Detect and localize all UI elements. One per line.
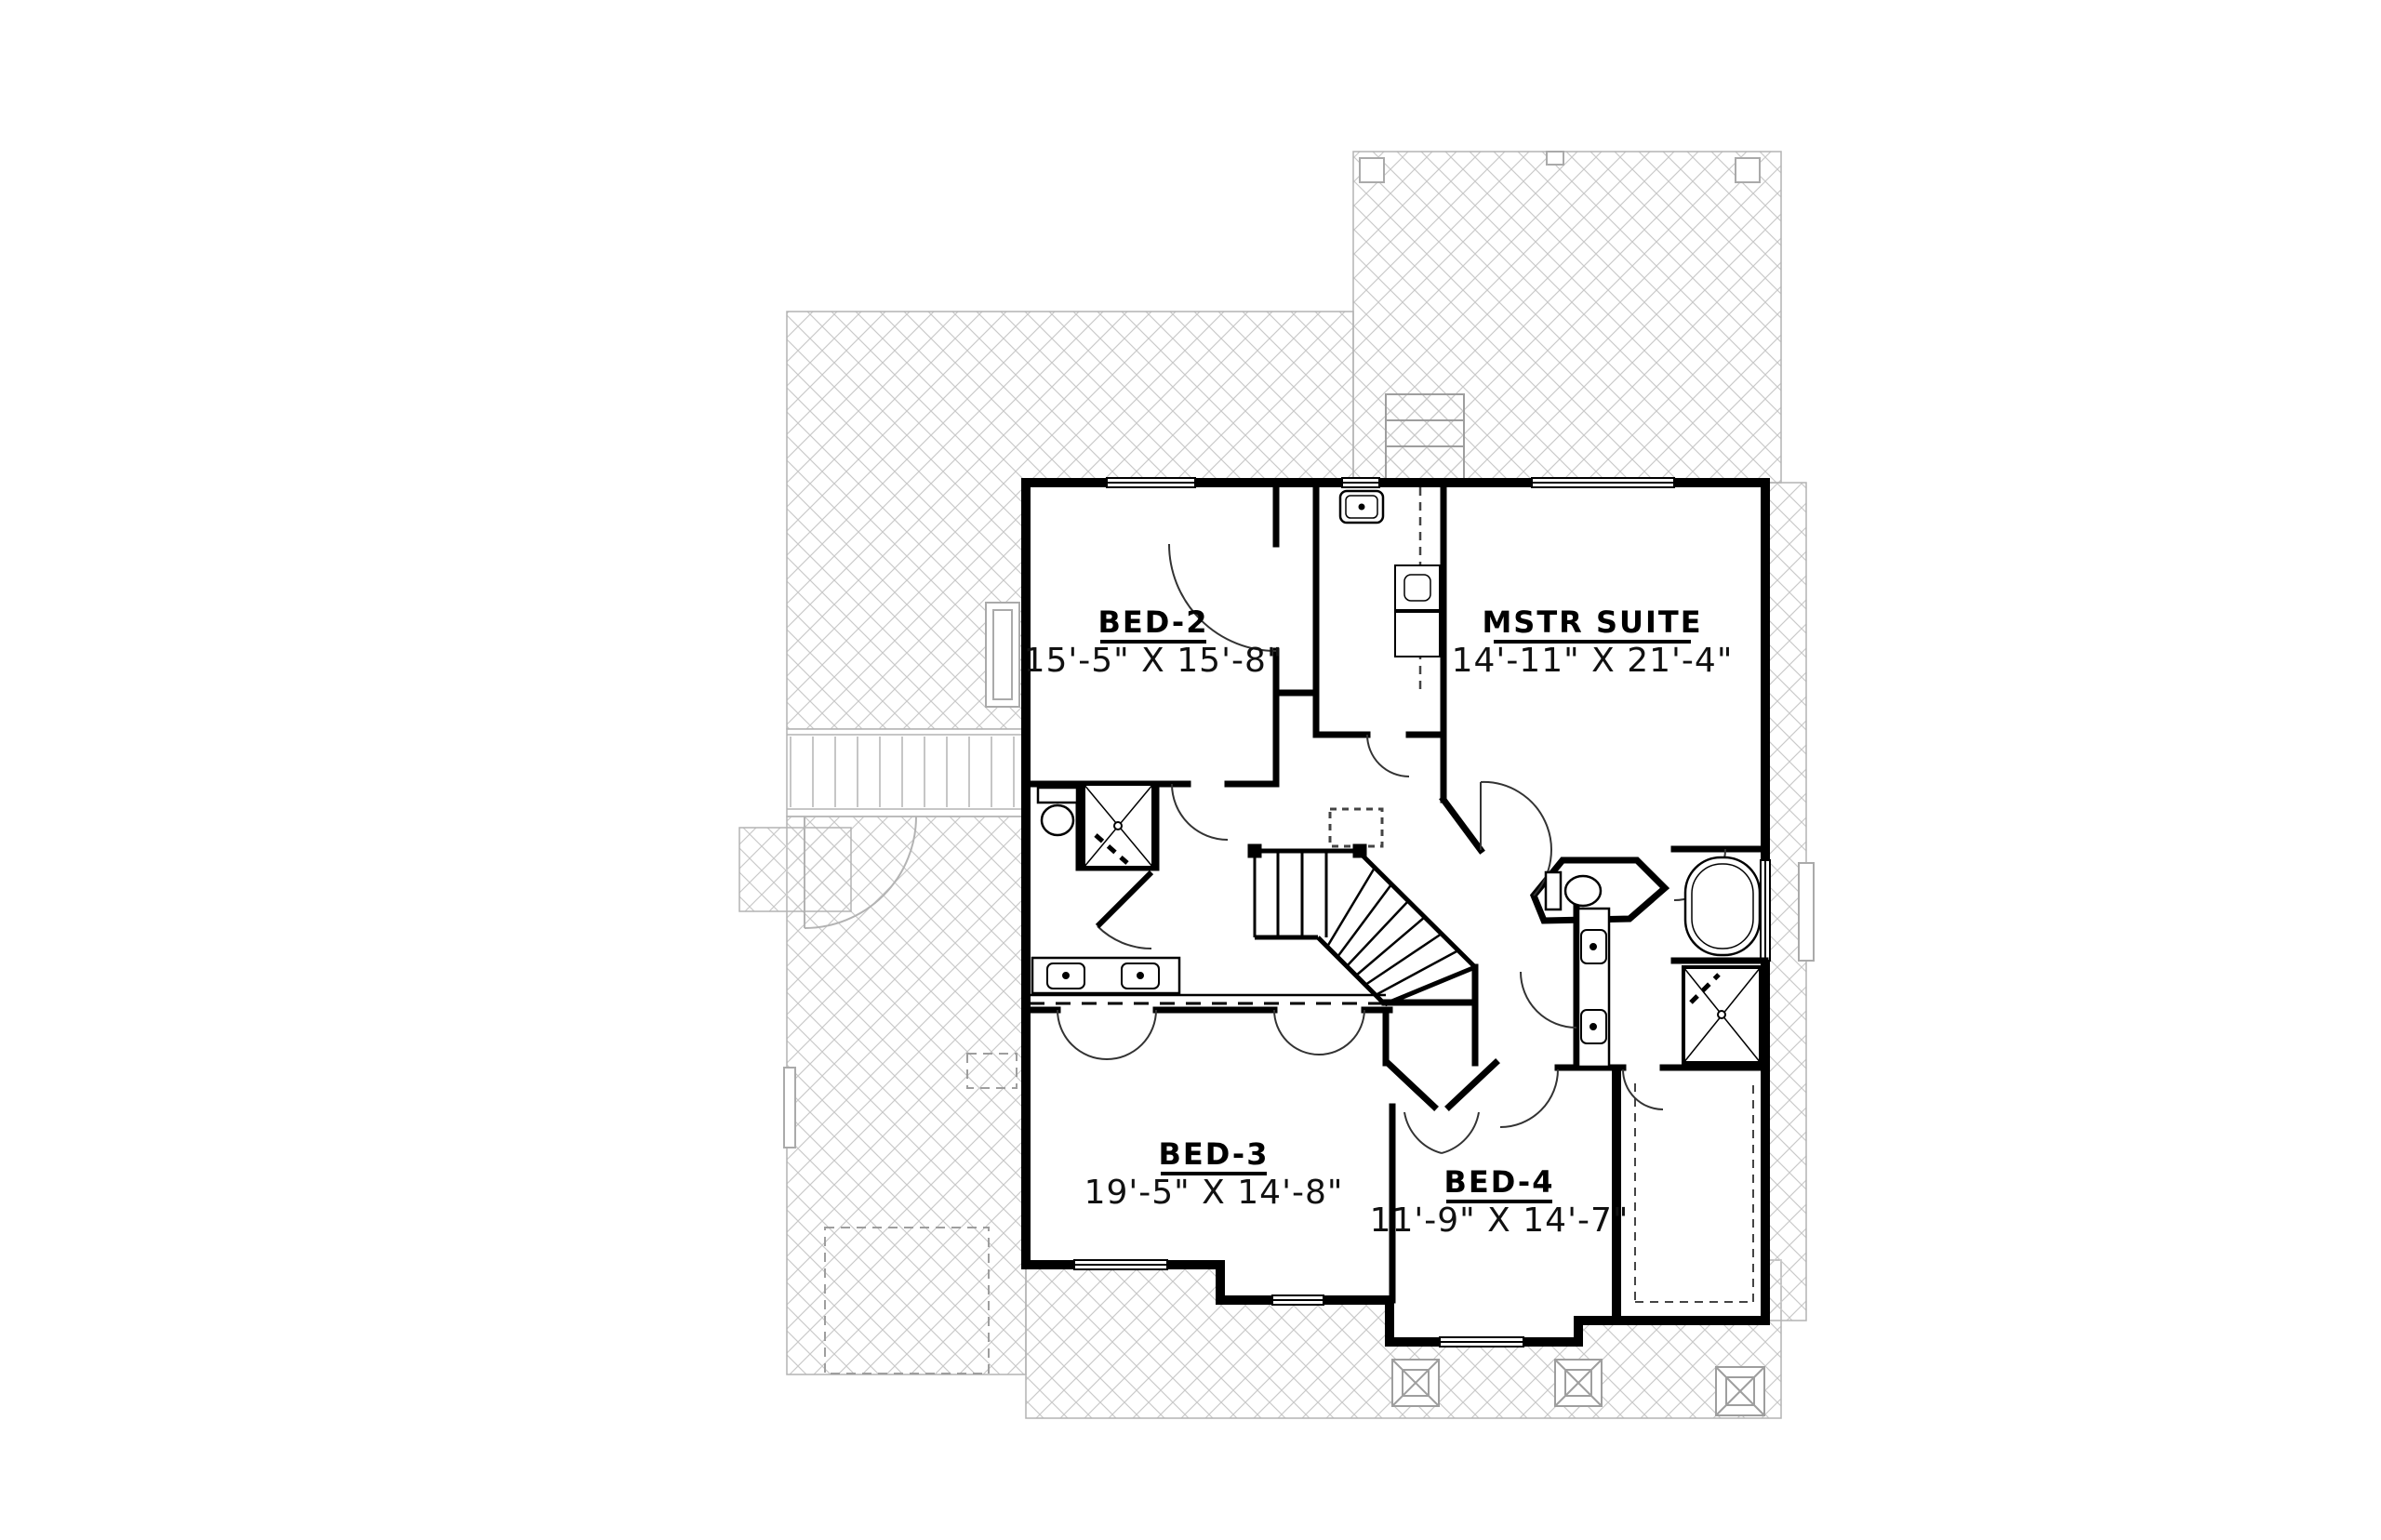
- double-vanity-icon: [1032, 958, 1179, 993]
- roof-deck-band: [787, 729, 1026, 816]
- ghost-window-right-strip: [1799, 863, 1814, 961]
- window: [1440, 1337, 1523, 1347]
- floor-plan-sheet: BED-2 15'-5" X 15'-8" MSTR SUITE 14'-11"…: [0, 0, 2381, 1540]
- wc-toilet-icon: [1546, 872, 1601, 909]
- toilet-icon: [1038, 788, 1077, 835]
- window: [1532, 478, 1674, 487]
- window: [1761, 860, 1770, 961]
- room-name: BED-4: [1444, 1164, 1555, 1200]
- room-dims: 14'-11" X 21'-4": [1452, 642, 1734, 680]
- window: [1342, 478, 1379, 487]
- window: [1074, 1260, 1167, 1269]
- room-dims: 19'-5" X 14'-8": [1084, 1174, 1344, 1212]
- master-shower-icon: [1683, 967, 1761, 1063]
- washer-dryer-icon: [1395, 565, 1440, 657]
- room-dims: 11'-9" X 14'-7": [1370, 1201, 1629, 1240]
- roof-small-box: [739, 828, 851, 911]
- chimney: [1386, 394, 1464, 480]
- master-vanity-icon: [1578, 909, 1609, 1067]
- ghost-window-left-edge: [784, 1068, 795, 1148]
- room-name: MSTR SUITE: [1482, 604, 1702, 640]
- tub-icon: [1685, 857, 1760, 955]
- window: [1272, 1295, 1324, 1305]
- floor-plan-drawing: BED-2 15'-5" X 15'-8" MSTR SUITE 14'-11"…: [0, 0, 2381, 1540]
- room-name: BED-2: [1098, 604, 1209, 640]
- room-name: BED-3: [1159, 1136, 1270, 1172]
- shower-icon: [1084, 784, 1153, 868]
- room-dims: 15'-5" X 15'-8": [1024, 642, 1284, 680]
- window: [1107, 478, 1195, 487]
- room-label-mstr-suite: MSTR SUITE 14'-11" X 21'-4": [1452, 604, 1734, 680]
- laundry-sink-icon: [1340, 491, 1383, 523]
